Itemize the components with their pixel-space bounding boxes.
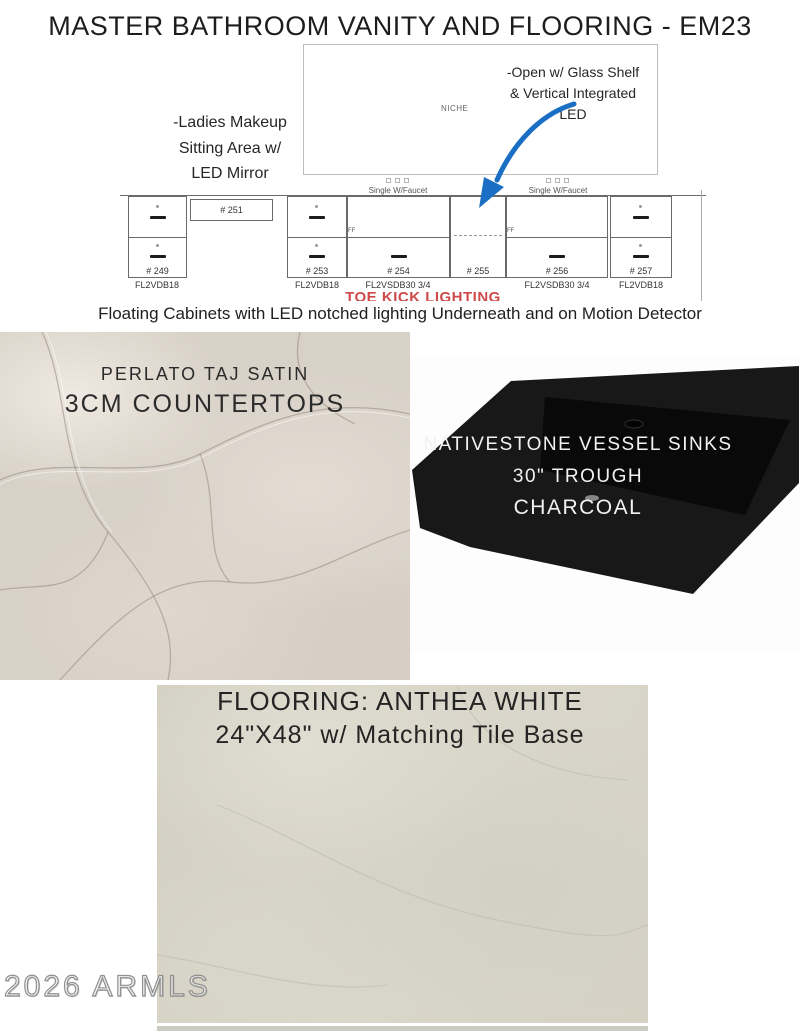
drawer-knob: [156, 244, 159, 247]
drawer-handle: [309, 216, 325, 219]
annotation-open-shelf-line3: LED: [466, 104, 680, 125]
cabinet-number: # 254: [348, 266, 449, 276]
flooring-subtitle: 24"X48" w/ Matching Tile Base: [0, 721, 800, 750]
cabinet-number: # 256: [507, 266, 607, 276]
faucet-hole-square: [546, 178, 551, 183]
design-board: MASTER BATHROOM VANITY AND FLOORING - EM…: [0, 0, 800, 1036]
drawer-knob: [156, 205, 159, 208]
floating-cabinets-caption: Floating Cabinets with LED notched light…: [0, 301, 800, 330]
cabinet-257: # 257: [610, 196, 672, 278]
cabinet-253: # 253: [287, 196, 347, 278]
faucet-hole: [625, 420, 643, 428]
drawer-knob: [315, 244, 318, 247]
faucet-hole-square: [564, 178, 569, 183]
cabinet-model: FL2VDB18: [112, 280, 202, 290]
countertop-title: PERLATO TAJ SATIN: [0, 364, 410, 385]
cabinet-model: FL2VDB18: [596, 280, 686, 290]
drawer-divider: [288, 237, 346, 238]
drawer-divider: [129, 237, 186, 238]
annotation-open-shelf-line1: -Open w/ Glass Shelf: [466, 62, 680, 83]
annotation-makeup-line1: -Ladies Makeup: [128, 110, 332, 136]
armls-watermark: 2026 ARMLS: [4, 970, 211, 1004]
cabinet-number: # 249: [129, 266, 186, 276]
cabinet-254: # 254: [347, 196, 450, 278]
cabinet-model: FL2VSDB30 3/4: [512, 280, 602, 290]
drawer-knob: [315, 205, 318, 208]
drawer-handle: [309, 255, 325, 258]
niche-label: NICHE: [441, 104, 468, 113]
ff-label: FF: [348, 228, 355, 234]
drawer-handle: [150, 255, 166, 258]
cabinet-249: # 249: [128, 196, 187, 278]
faucet-hole-square: [386, 178, 391, 183]
sink-sample-image: NATIVESTONE VESSEL SINKS 30" TROUGH CHAR…: [410, 356, 800, 652]
faucet-holes-icon: [386, 178, 409, 183]
faucet-hole-square: [555, 178, 560, 183]
drawer-handle: [633, 216, 649, 219]
drawer-knob: [639, 244, 642, 247]
cabinet-number: # 255: [451, 266, 505, 276]
cabinet-255-open-shelf: # 255: [450, 196, 506, 278]
countertop-subtitle: 3CM COUNTERTOPS: [0, 390, 410, 419]
cabinet-251-knee-drawer: # 251: [190, 199, 273, 221]
drawer-knob: [639, 205, 642, 208]
faucet-hole-square: [395, 178, 400, 183]
single-faucet-label-left: Single W/Faucet: [343, 186, 453, 195]
cabinet-model: FL2VDB18: [272, 280, 362, 290]
single-faucet-label-right: Single W/Faucet: [503, 186, 613, 195]
cabinet-model: FL2VSDB30 3/4: [353, 280, 443, 290]
tile-base-strip: [157, 1026, 648, 1031]
countertop-sample-image: PERLATO TAJ SATIN 3CM COUNTERTOPS: [0, 332, 410, 680]
annotation-makeup-line3: LED Mirror: [128, 161, 332, 187]
faucet-holes-icon: [546, 178, 569, 183]
flooring-title: FLOORING: ANTHEA WHITE: [0, 686, 800, 717]
cabinet-number: # 253: [288, 266, 346, 276]
drawer-handle: [549, 255, 565, 258]
sink-base-divider: [348, 237, 449, 238]
annotation-makeup-line2: Sitting Area w/: [128, 136, 332, 162]
faucet-hole-square: [404, 178, 409, 183]
glass-shelf-line: [454, 235, 502, 236]
cabinet-number: # 257: [611, 266, 671, 276]
ff-label: FF: [507, 228, 514, 234]
drawer-handle: [391, 255, 407, 258]
sink-line3: CHARCOAL: [410, 496, 746, 520]
drawer-handle: [150, 216, 166, 219]
drawer-divider: [611, 237, 671, 238]
annotation-open-shelf-line2: & Vertical Integrated: [466, 83, 680, 104]
annotation-makeup-area: -Ladies Makeup Sitting Area w/ LED Mirro…: [128, 110, 332, 187]
drawer-handle: [633, 255, 649, 258]
sink-base-divider: [507, 237, 607, 238]
sink-line2: 30" TROUGH: [410, 466, 746, 488]
page-title: MASTER BATHROOM VANITY AND FLOORING - EM…: [0, 11, 800, 42]
sink-line1: NATIVESTONE VESSEL SINKS: [410, 434, 746, 456]
cabinet-256: # 256: [506, 196, 608, 278]
annotation-open-shelf: -Open w/ Glass Shelf & Vertical Integrat…: [466, 62, 680, 125]
